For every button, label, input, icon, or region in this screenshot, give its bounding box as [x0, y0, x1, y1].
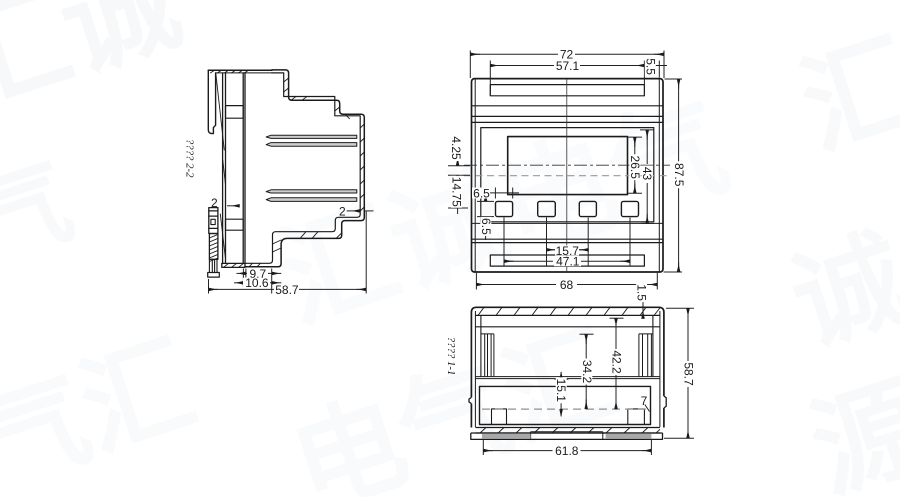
svg-text:14.75: 14.75 [450, 177, 464, 207]
svg-text:61.8: 61.8 [555, 444, 579, 458]
svg-text:???? 1-1: ???? 1-1 [445, 337, 457, 376]
svg-text:???? 2-2: ???? 2-2 [184, 139, 196, 178]
svg-text:气汇: 气汇 [0, 322, 208, 500]
svg-text:58.7: 58.7 [275, 283, 299, 297]
svg-text:6.5: 6.5 [479, 218, 493, 235]
svg-text:68: 68 [560, 278, 574, 292]
svg-text:5.5: 5.5 [643, 58, 657, 75]
svg-text:47.1: 47.1 [556, 255, 580, 269]
svg-text:汇诚: 汇诚 [787, 0, 900, 171]
svg-text:6.5: 6.5 [473, 186, 490, 200]
svg-text:源: 源 [798, 363, 900, 500]
svg-text:10.6: 10.6 [245, 276, 269, 290]
svg-text:4.25: 4.25 [449, 136, 463, 160]
svg-text:87.5: 87.5 [672, 163, 686, 187]
svg-text:43: 43 [640, 167, 654, 181]
svg-text:2: 2 [339, 204, 346, 218]
svg-text:58.7: 58.7 [682, 362, 696, 386]
svg-text:2: 2 [211, 196, 218, 210]
svg-text:汇诚电气: 汇诚电气 [265, 82, 742, 346]
svg-text:42.2: 42.2 [609, 350, 623, 374]
svg-text:34.2: 34.2 [580, 360, 594, 384]
svg-text:诚电: 诚电 [778, 182, 900, 367]
svg-text:57.1: 57.1 [556, 59, 580, 73]
svg-text:15.1: 15.1 [554, 379, 568, 403]
svg-text:气: 气 [0, 143, 85, 280]
svg-text:7: 7 [641, 394, 648, 408]
svg-text:26.5: 26.5 [628, 156, 642, 180]
svg-text:汇诚: 汇诚 [0, 0, 195, 129]
svg-text:1.5: 1.5 [635, 284, 649, 301]
